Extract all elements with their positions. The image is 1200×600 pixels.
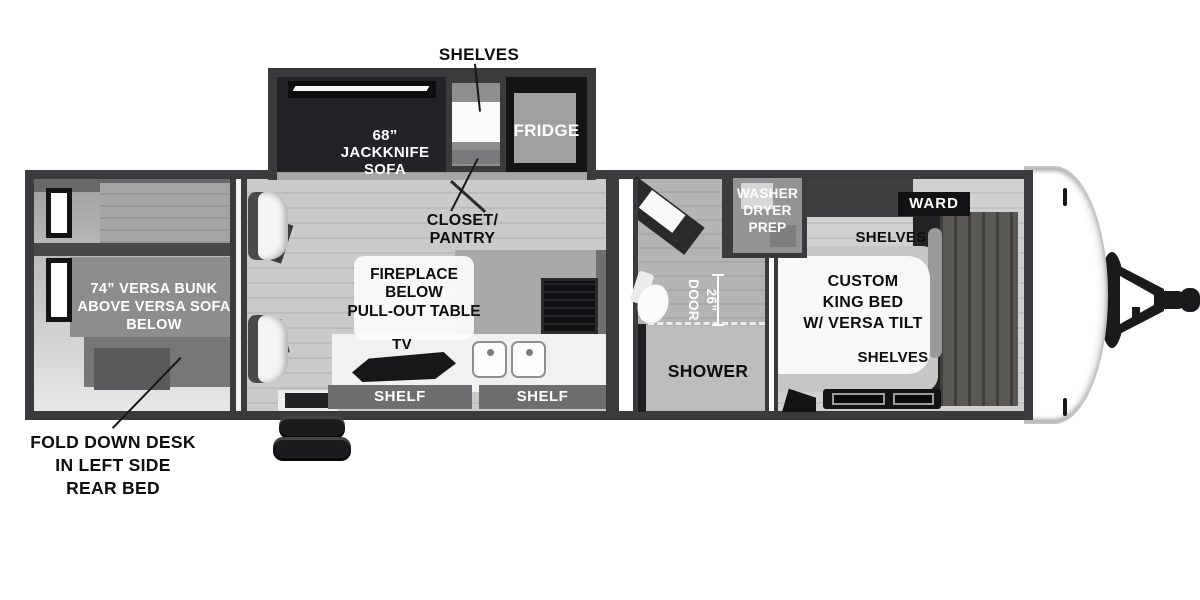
shelf-banner-right: SHELF	[479, 385, 606, 409]
fireplace-table-label: FIREPLACE BELOW PULL-OUT TABLE	[329, 266, 499, 321]
rear-window-upper	[46, 188, 72, 238]
theater-seat	[248, 315, 288, 383]
shelf-banner-left: SHELF	[328, 385, 472, 409]
wardrobe-banner: WARD	[898, 192, 970, 216]
bed-shelves-bottom-label: SHELVES	[848, 350, 938, 367]
bath-wall	[606, 179, 619, 411]
washer-dryer-prep-label: WASHER DRYER PREP	[728, 186, 807, 237]
fold-down-desk	[94, 348, 170, 390]
cap-marker	[1063, 398, 1067, 416]
shelves-callout-label: SHELVES	[436, 45, 522, 64]
entry-step	[273, 437, 351, 461]
entry-door-mat	[285, 393, 331, 408]
stove	[541, 278, 598, 334]
bed-step-pad	[832, 393, 885, 405]
versa-bunk-label: 74” VERSA BUNK ABOVE VERSA SOFA BELOW	[64, 280, 244, 334]
tv-label: TV	[380, 337, 424, 354]
window-glass	[293, 86, 430, 91]
cap-marker	[1063, 188, 1067, 206]
rear-overhead-shelf	[100, 183, 238, 243]
slideout-window	[288, 81, 436, 98]
door-width-label: 26” DOOR	[664, 276, 720, 324]
king-bed-label: CUSTOM KING BED W/ VERSA TILT	[788, 272, 938, 334]
hitch-icon	[1098, 245, 1200, 355]
shower-wall	[638, 324, 646, 412]
fold-down-desk-label: FOLD DOWN DESK IN LEFT SIDE REAR BED	[28, 431, 198, 499]
jackknife-sofa-label: 68” JACKKNIFE SOFA	[300, 128, 470, 178]
rv-floorplan-diagram: 74” VERSA BUNK ABOVE VERSA SOFA BELOW 68…	[0, 0, 1200, 600]
wardrobe	[940, 212, 1018, 406]
fridge-label: FRIDGE	[506, 121, 587, 140]
theater-seat	[248, 192, 288, 260]
kitchen-sink	[472, 341, 507, 378]
bed-step-pad	[893, 393, 934, 405]
entry-step	[279, 416, 345, 439]
rear-shelf-band	[34, 243, 238, 256]
shower-label: SHOWER	[650, 362, 766, 382]
closet-pantry-label: CLOSET/ PANTRY	[410, 212, 515, 248]
bed-shelves-top-label: SHELVES	[846, 230, 936, 247]
front-wall	[1024, 170, 1033, 420]
kitchen-sink	[511, 341, 546, 378]
fireplace-table-callout-box: FIREPLACE BELOW PULL-OUT TABLE	[354, 256, 474, 340]
bedroom-overhead-cabinet	[800, 179, 913, 217]
bed-steps	[823, 389, 941, 409]
